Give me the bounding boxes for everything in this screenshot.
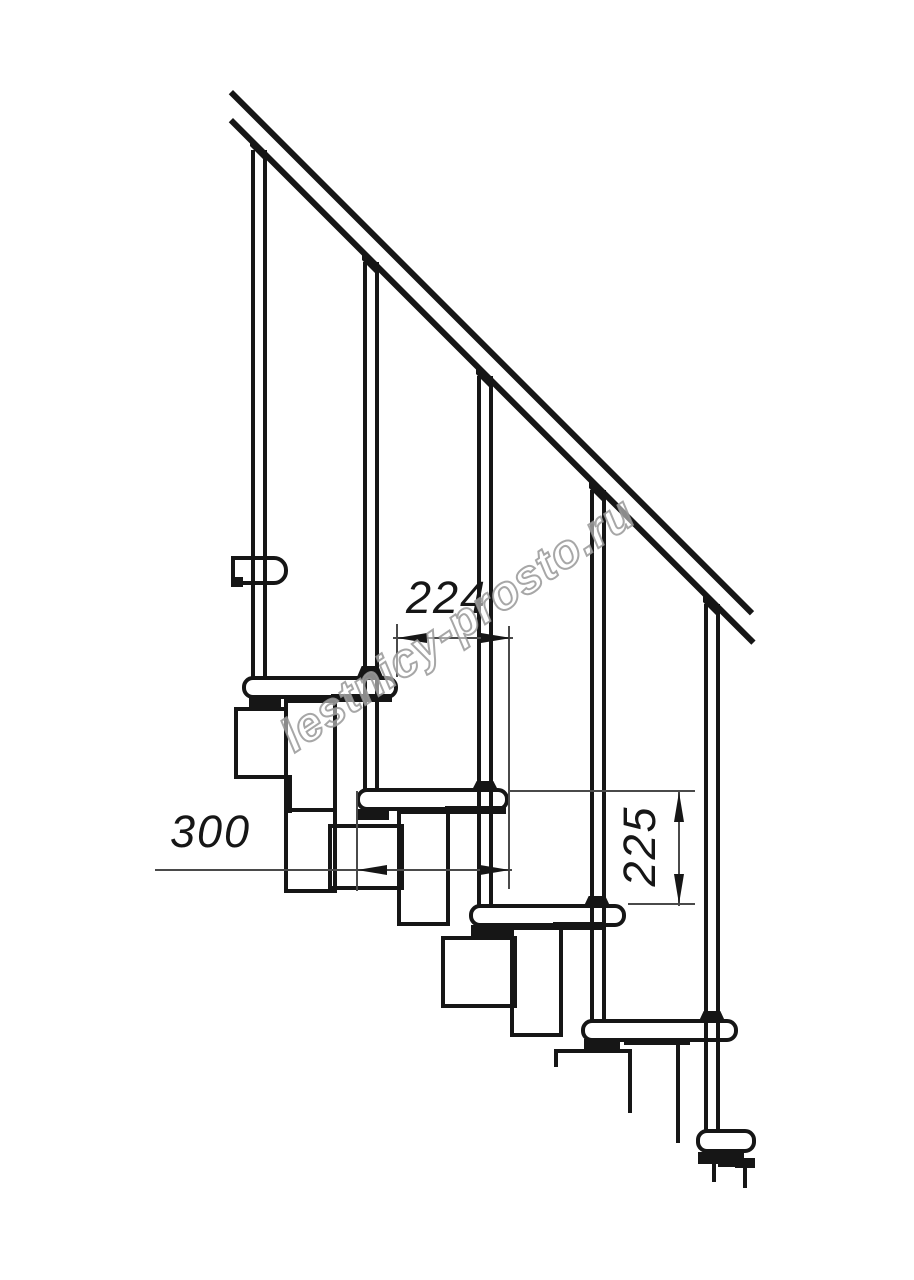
module-box-3-left-stub — [554, 1049, 558, 1067]
module-column-2 — [397, 810, 450, 926]
bolt-cap-tread-1 — [357, 666, 383, 677]
baluster-4-right-line — [602, 490, 606, 1020]
dim-depth-arrow-right — [480, 865, 510, 875]
baluster-2-left-line — [363, 262, 367, 789]
dim-run-arrow-left — [397, 633, 427, 643]
drawing-shape-layer — [0, 0, 914, 1280]
baluster-2-right-line — [375, 262, 379, 789]
staircase-drawing-canvas: 224 300 225 lestnicy-prosto.ru — [0, 0, 914, 1280]
floor-anchor-hline — [718, 1164, 746, 1167]
dim-run-arrow-right — [481, 633, 511, 643]
nut-under-tread-3 — [553, 922, 605, 930]
baluster-1-right-line — [263, 150, 267, 677]
floor-anchor-stub-right — [743, 1164, 747, 1188]
clamp-under-tread-1 — [249, 697, 281, 708]
rail-bracket-notch — [231, 577, 243, 587]
dim-run-extension-left — [396, 624, 398, 677]
bolt-cap-tread-4 — [699, 1011, 725, 1021]
dim-depth-extension — [356, 791, 358, 891]
baluster-5-left-line — [704, 604, 708, 1130]
nut-under-tread-1 — [331, 694, 392, 702]
dim-depth-arrow-left — [357, 865, 387, 875]
dim-rise-arrow-up — [674, 792, 684, 822]
bolt-cap-tread-2 — [472, 781, 498, 790]
module-box-3-right-edge — [628, 1049, 632, 1113]
dim-rise-extension-top — [510, 790, 695, 792]
floor-slab-left-edge — [234, 707, 238, 779]
nut-under-tread-2 — [445, 806, 506, 814]
floor-anchor-stub-left — [712, 1162, 716, 1182]
baluster-1-left-line — [251, 150, 255, 677]
dimension-label-step-rise: 225 — [615, 800, 665, 892]
dim-depth-line — [155, 869, 512, 871]
dimension-label-tread-depth: 300 — [170, 806, 251, 858]
module-box-1 — [328, 824, 404, 890]
clamp-under-tread-4 — [584, 1039, 620, 1050]
nut-under-tread-4 — [624, 1038, 690, 1045]
bolt-cap-tread-3 — [584, 896, 610, 906]
dim-run-extension-right — [508, 626, 510, 889]
baluster-5-right-line — [716, 604, 720, 1130]
clamp-under-tread-2 — [356, 809, 389, 820]
dimension-label-step-run: 224 — [406, 572, 487, 624]
dim-rise-arrow-down — [674, 874, 684, 904]
module-box-2 — [441, 936, 517, 1008]
clamp-under-tread-3 — [471, 925, 512, 936]
dim-rise-extension-bottom — [628, 903, 695, 905]
baluster-4-left-line — [590, 490, 594, 1020]
tread-5-bottom — [696, 1129, 756, 1153]
module-column-3 — [510, 926, 563, 1037]
module-column-4-right-edge — [676, 1041, 680, 1143]
module-column-1-joint — [286, 808, 335, 812]
